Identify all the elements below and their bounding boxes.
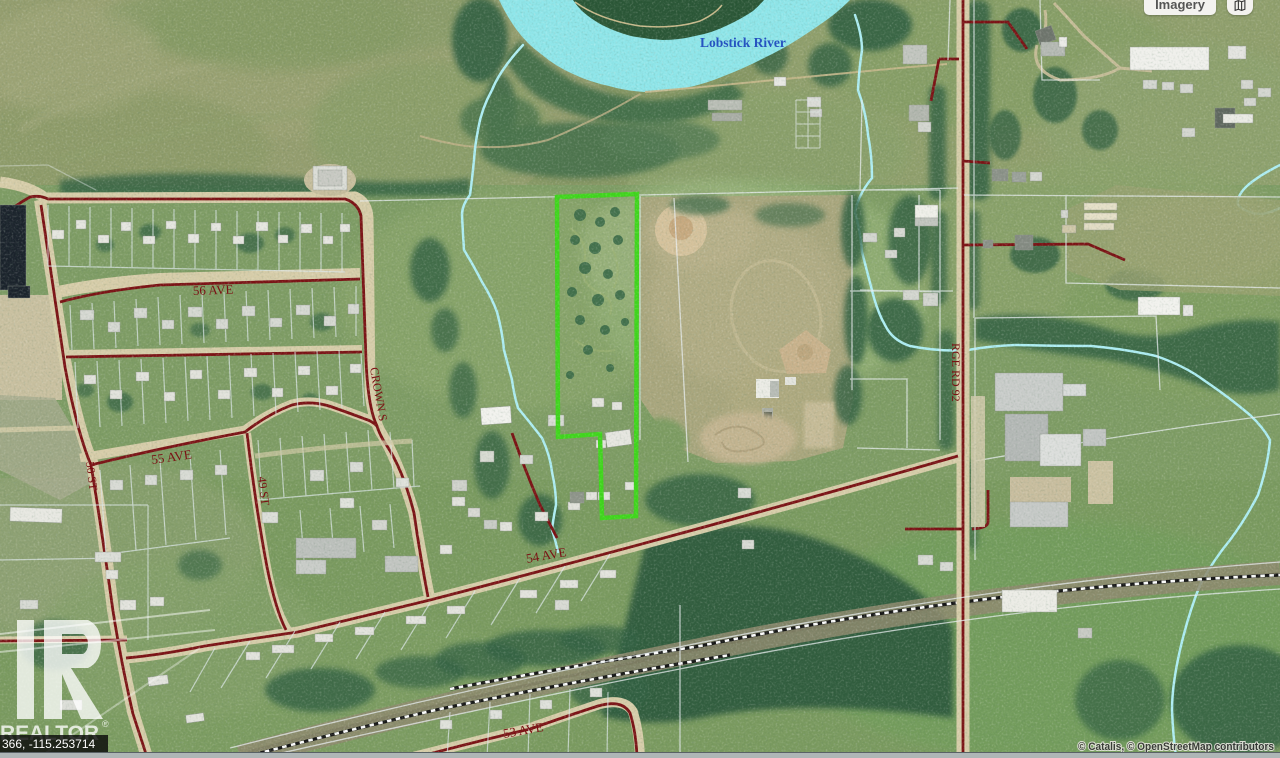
svg-text:®: ® (102, 719, 109, 729)
